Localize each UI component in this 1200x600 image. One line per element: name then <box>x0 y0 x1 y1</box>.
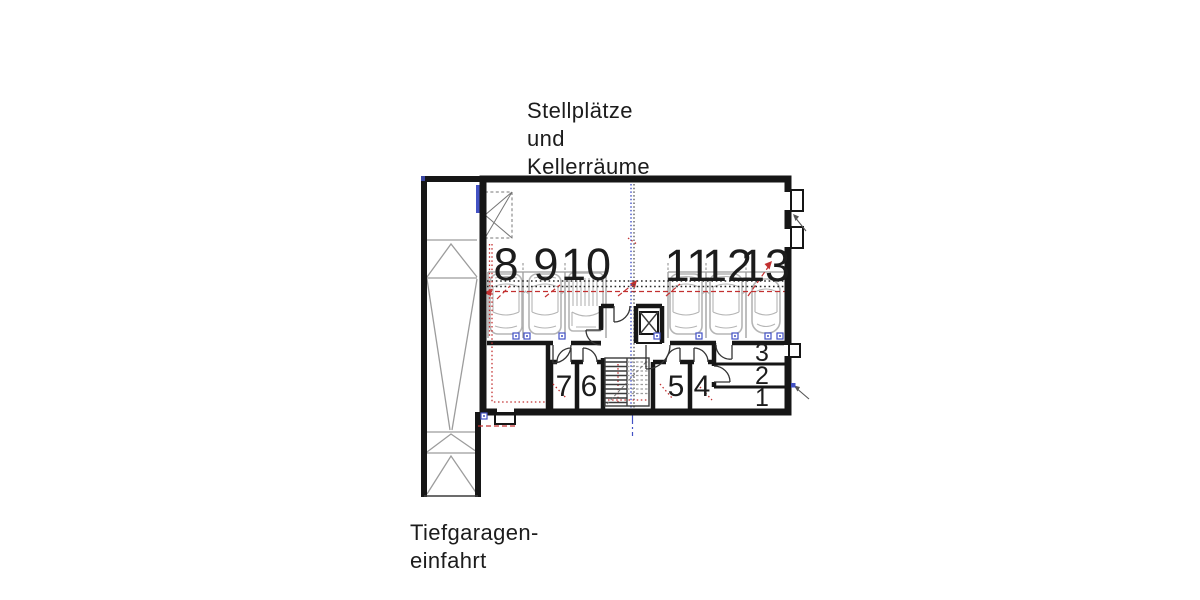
parking-space-13-label: 13 <box>740 240 790 291</box>
staircase <box>605 358 649 406</box>
cellar-room-5-label: 5 <box>668 370 685 403</box>
entrance-label-line-2: einfahrt <box>410 548 487 573</box>
plan-heading-line-1: Stellplätze <box>527 98 633 123</box>
garage-door-swing <box>485 192 512 238</box>
plan-heading-line-3: Kellerräume <box>527 154 650 179</box>
parking-space-9-label: 9 <box>533 239 558 290</box>
garage-ramp <box>421 176 481 497</box>
cellar-room-7-label: 7 <box>556 370 573 403</box>
plan-heading-line-2: und <box>527 126 565 151</box>
cellar-room-4-label: 4 <box>694 370 711 403</box>
cellar-room-1-label: 1 <box>755 384 769 412</box>
elevator-shaft <box>640 312 658 334</box>
floor-plan-drawing: Stellplätze und Kellerräume 8 9 10 11 12… <box>0 0 1200 600</box>
parking-space-10-label: 10 <box>561 239 611 290</box>
floor-plan-page: Stellplätze und Kellerräume 8 9 10 11 12… <box>0 0 1200 600</box>
entrance-label-line-1: Tiefgaragen- <box>410 520 539 545</box>
parking-space-8-label: 8 <box>493 239 518 290</box>
cellar-room-6-label: 6 <box>581 370 598 403</box>
